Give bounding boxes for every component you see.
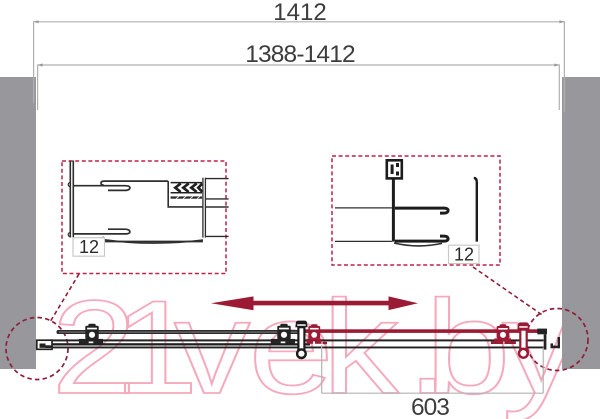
- svg-text:1388-1412: 1388-1412: [245, 41, 355, 68]
- svg-text:k: k: [322, 273, 399, 419]
- svg-text:e: e: [249, 273, 334, 419]
- svg-text:603: 603: [411, 394, 449, 419]
- svg-text:v: v: [174, 273, 251, 419]
- svg-text:12: 12: [454, 244, 474, 264]
- svg-text:12: 12: [79, 237, 99, 257]
- svg-text:1412: 1412: [273, 0, 326, 26]
